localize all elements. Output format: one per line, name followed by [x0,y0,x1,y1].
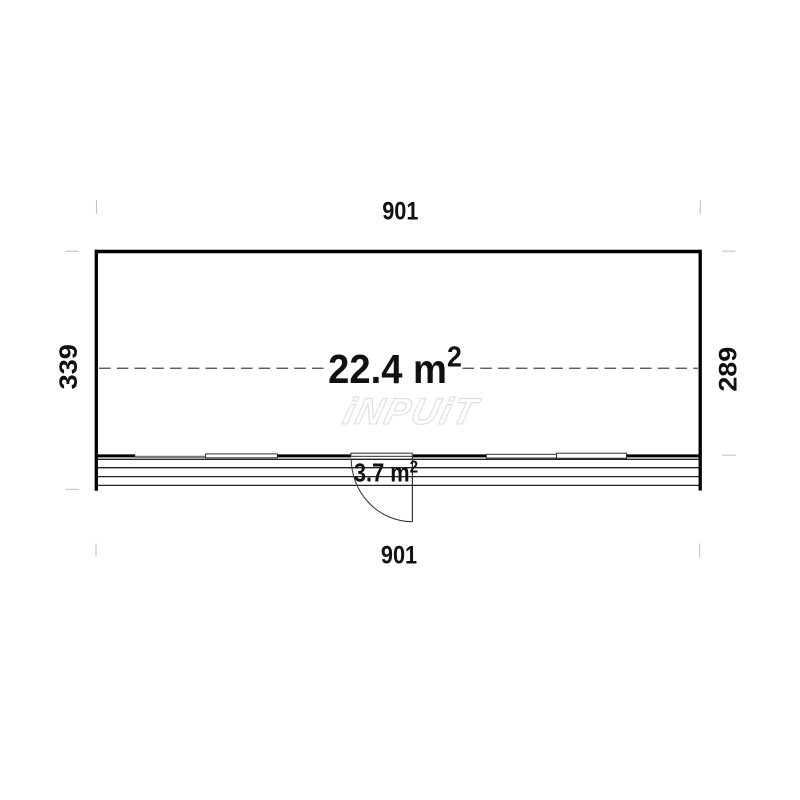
svg-text:339: 339 [56,344,83,390]
svg-text:22.4 m2: 22.4 m2 [328,341,462,392]
svg-text:901: 901 [381,542,417,570]
svg-text:3.7 m2: 3.7 m2 [354,456,418,488]
svg-text:901: 901 [382,198,418,226]
svg-text:iNPUiT: iNPUiT [339,391,484,432]
svg-text:289: 289 [716,347,743,392]
